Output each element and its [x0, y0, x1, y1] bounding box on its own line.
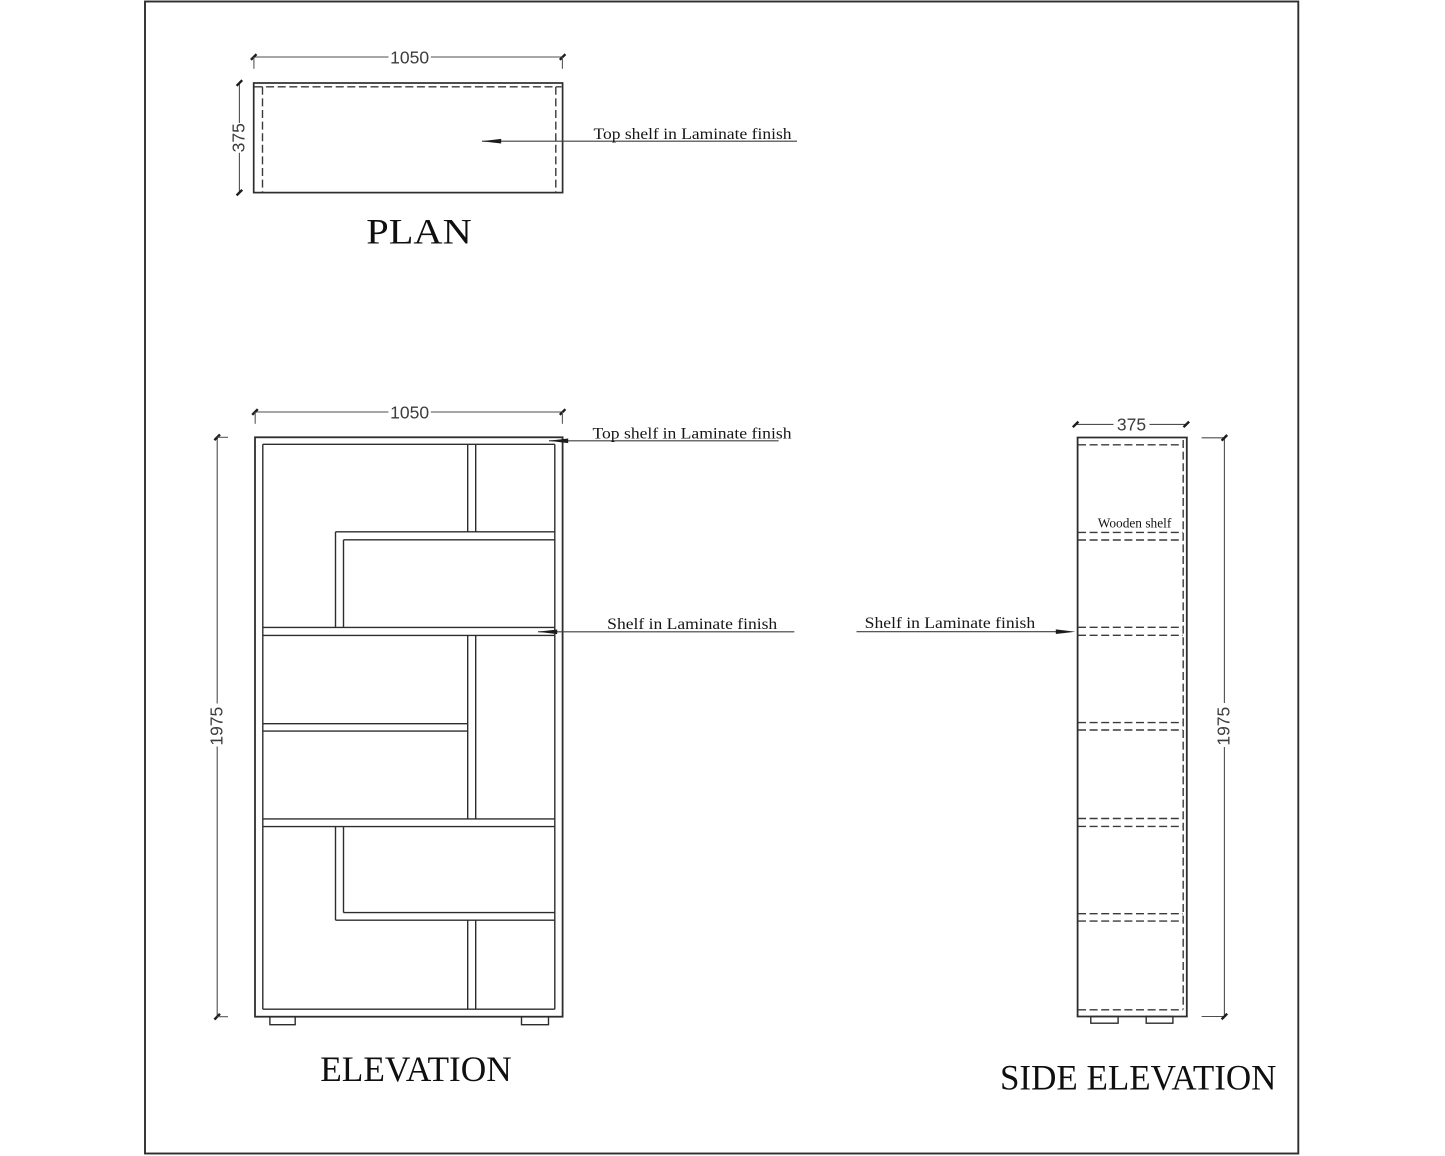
svg-text:SIDE ELEVATION: SIDE ELEVATION — [1000, 1057, 1277, 1097]
svg-text:Top shelf in Laminate finish: Top shelf in Laminate finish — [594, 126, 792, 143]
svg-text:Shelf in Laminate finish: Shelf in Laminate finish — [607, 616, 777, 633]
svg-text:375: 375 — [1117, 414, 1146, 434]
svg-text:1975: 1975 — [1214, 707, 1234, 746]
svg-text:PLAN: PLAN — [366, 212, 472, 252]
svg-text:ELEVATION: ELEVATION — [320, 1049, 512, 1089]
svg-text:1050: 1050 — [390, 403, 429, 423]
svg-text:375: 375 — [229, 123, 249, 152]
svg-text:Top shelf in Laminate finish: Top shelf in Laminate finish — [593, 426, 792, 443]
svg-text:Shelf in Laminate finish: Shelf in Laminate finish — [865, 615, 1035, 632]
svg-text:1975: 1975 — [206, 707, 226, 746]
svg-text:1050: 1050 — [390, 48, 429, 68]
svg-text:Wooden shelf: Wooden shelf — [1098, 515, 1172, 530]
